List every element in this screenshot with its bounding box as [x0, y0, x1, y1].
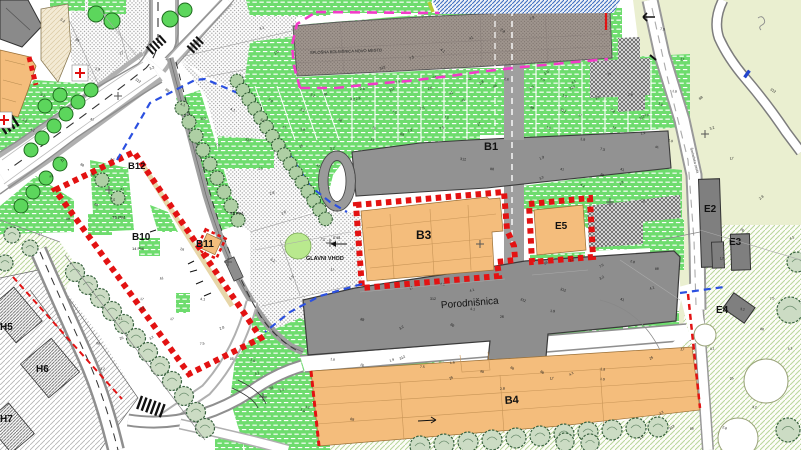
- svg-text:3.2: 3.2: [740, 307, 745, 312]
- svg-text:78 PM: 78 PM: [230, 211, 243, 216]
- svg-text:2.8: 2.8: [95, 67, 100, 72]
- svg-text:2.8: 2.8: [628, 93, 633, 97]
- svg-text:1.9: 1.9: [450, 361, 455, 365]
- svg-text:17: 17: [350, 247, 354, 251]
- svg-text:88: 88: [690, 427, 694, 431]
- svg-text:88: 88: [230, 357, 234, 361]
- svg-text:H7: H7: [0, 414, 13, 425]
- svg-text:1.9: 1.9: [600, 367, 606, 372]
- svg-text:B11: B11: [196, 239, 214, 250]
- svg-text:41: 41: [655, 145, 659, 149]
- svg-text:14 PM: 14 PM: [132, 246, 144, 251]
- svg-text:7.5: 7.5: [600, 147, 606, 152]
- svg-text:312: 312: [460, 157, 466, 162]
- svg-text:H6: H6: [36, 364, 49, 375]
- svg-text:E5: E5: [555, 221, 568, 232]
- svg-text:88: 88: [490, 167, 494, 171]
- svg-text:4.1: 4.1: [110, 157, 115, 162]
- svg-text:3.2: 3.2: [752, 405, 757, 410]
- svg-text:4.1: 4.1: [118, 317, 123, 321]
- svg-text:17: 17: [729, 156, 734, 161]
- svg-text:312: 312: [200, 117, 206, 121]
- svg-text:88: 88: [66, 217, 70, 221]
- svg-text:B3: B3: [416, 228, 432, 242]
- svg-text:41: 41: [468, 77, 472, 81]
- svg-text:17: 17: [720, 257, 724, 261]
- svg-text:3.2: 3.2: [350, 97, 355, 102]
- svg-text:2.8: 2.8: [504, 77, 509, 82]
- svg-text:17: 17: [550, 376, 555, 381]
- svg-text:26: 26: [500, 315, 504, 319]
- svg-text:3.2: 3.2: [100, 367, 105, 371]
- svg-text:GLAVNI VHOD: GLAVNI VHOD: [306, 256, 344, 262]
- svg-text:1.9: 1.9: [600, 377, 605, 381]
- svg-text:4.1: 4.1: [258, 167, 263, 171]
- svg-text:75 PM: 75 PM: [112, 215, 125, 220]
- svg-text:1.9: 1.9: [550, 309, 555, 313]
- svg-text:4.1: 4.1: [710, 346, 715, 351]
- svg-text:E4: E4: [716, 305, 729, 316]
- svg-text:B10: B10: [132, 232, 151, 243]
- svg-text:S 98: S 98: [333, 236, 340, 240]
- svg-text:3.2: 3.2: [305, 405, 310, 409]
- svg-text:1.9: 1.9: [644, 113, 649, 117]
- svg-text:E2: E2: [704, 204, 717, 215]
- svg-text:E3: E3: [729, 237, 742, 248]
- svg-text:7.5: 7.5: [420, 365, 425, 369]
- svg-text:B1: B1: [484, 141, 498, 153]
- svg-text:1.9: 1.9: [672, 89, 677, 94]
- svg-text:3.2: 3.2: [329, 146, 335, 151]
- svg-text:4.1: 4.1: [470, 307, 475, 311]
- svg-text:17: 17: [140, 297, 144, 301]
- svg-text:B12: B12: [128, 161, 145, 172]
- svg-text:17: 17: [432, 75, 436, 79]
- svg-text:B4: B4: [504, 394, 520, 407]
- svg-text:2.8: 2.8: [360, 87, 365, 91]
- svg-text:7.5: 7.5: [660, 27, 665, 32]
- svg-text:2.8: 2.8: [500, 387, 505, 391]
- svg-text:312: 312: [430, 297, 436, 301]
- svg-text:88: 88: [655, 267, 659, 271]
- svg-text:17: 17: [170, 317, 174, 321]
- svg-text:4.1: 4.1: [200, 297, 206, 302]
- svg-text:7.5: 7.5: [200, 341, 205, 346]
- svg-text:H5: H5: [0, 322, 13, 333]
- svg-text:88: 88: [760, 327, 764, 332]
- svg-text:26: 26: [180, 247, 185, 252]
